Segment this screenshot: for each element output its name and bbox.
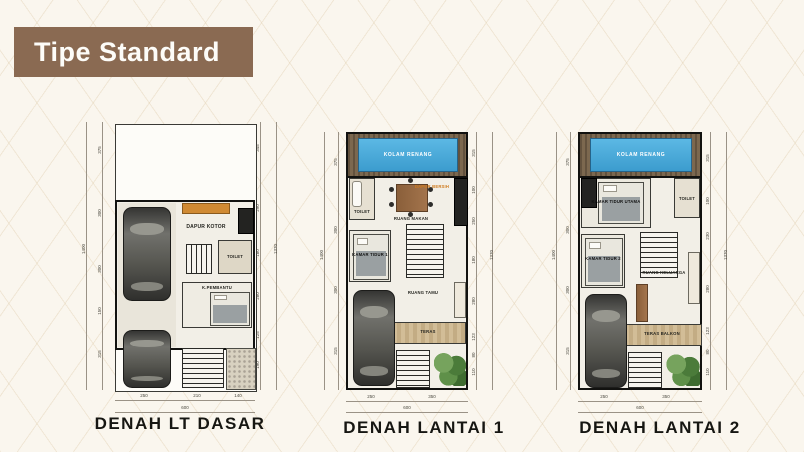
room-label-kamar-tidur-1: KAMAR TIDUR 1	[349, 252, 391, 258]
dimension-label: 300	[333, 218, 339, 242]
dimension-label: 230	[705, 224, 711, 248]
room-label-kolam-renang: KOLAM RENANG	[617, 152, 666, 158]
dimension-label: 350	[417, 394, 447, 400]
dimension-label: 150	[97, 299, 103, 323]
dimension-label: 190	[255, 353, 261, 377]
dimension-label: 600	[625, 405, 655, 411]
chair	[389, 202, 394, 207]
dimension-label: 250	[589, 394, 619, 400]
dimension-line	[346, 401, 468, 402]
appliance-cabinet	[238, 208, 254, 234]
dimension-label: 375	[333, 150, 339, 174]
gravel-patch	[226, 348, 256, 390]
dimension-label: 100	[471, 178, 477, 202]
dimension-label: 110	[471, 360, 477, 384]
room-label-toilet: TOILET	[218, 254, 252, 260]
room-label-kamar-tidur-utama: KAMAR TIDUR UTAMA	[584, 199, 648, 205]
dimension-label: 280	[705, 277, 711, 301]
dimension-label: 1400	[319, 243, 325, 267]
dimension-label: 300	[97, 201, 103, 225]
plan-title: DENAH LANTAI 2	[540, 418, 780, 438]
room-label-kolam-renang: KOLAM RENANG	[384, 152, 433, 158]
plan-title: DENAH LT DASAR	[70, 414, 290, 434]
room-label-dapur-kotor: DAPUR KOTOR	[175, 224, 237, 230]
dimension-line	[346, 412, 468, 413]
floor-plan-level1: KOLAM RENANG TOILET RUANG MAKAN DAPUR BE…	[308, 112, 540, 442]
sofa	[454, 282, 466, 318]
outdoor-stairs	[182, 348, 224, 388]
room-label-teras: TERAS	[392, 329, 464, 335]
room-label-ruang-keluarga: RUANG KELUARGA	[632, 270, 696, 276]
dimension-label: 100	[705, 189, 711, 213]
dimension-label: 300	[565, 278, 571, 302]
dimension-label: 315	[565, 339, 571, 363]
dimension-label: 315	[97, 342, 103, 366]
dimension-label: 210	[182, 393, 212, 399]
dimension-label: 280	[471, 289, 477, 313]
dimension-label: 345	[255, 136, 261, 160]
dimension-label: 1400	[551, 243, 557, 267]
dimension-line	[578, 412, 702, 413]
dimension-label: 600	[170, 405, 200, 411]
plan-title: DENAH LANTAI 1	[308, 418, 540, 438]
swimming-pool: KOLAM RENANG	[358, 138, 458, 172]
floor-plan-level2: KOLAM RENANG KAMAR TIDUR UTAMA TOILET KA…	[540, 112, 780, 442]
console-table	[636, 284, 648, 322]
room-label-toilet: TOILET	[346, 209, 378, 215]
type-banner: Tipe Standard	[14, 27, 253, 77]
dimension-label: 1370	[723, 243, 729, 267]
dimension-label: 180	[471, 248, 477, 272]
outdoor-stairs	[396, 350, 430, 388]
outdoor-stairs	[628, 352, 662, 388]
stairs	[406, 224, 444, 278]
chair	[408, 178, 413, 183]
dimension-label: 250	[471, 209, 477, 233]
dimension-line	[115, 400, 255, 401]
bed	[210, 292, 250, 326]
dimension-label: 300	[97, 257, 103, 281]
floor-plan-ground: DAPUR KOTOR TOILET K.PEMBANTU 375 300 30…	[70, 112, 290, 442]
kitchen-cabinet	[454, 178, 468, 226]
dimension-label: 300	[565, 218, 571, 242]
room-label-pembantu: K.PEMBANTU	[182, 285, 252, 291]
dimension-label: 280	[255, 284, 261, 308]
bed	[585, 238, 623, 286]
car-top-view	[353, 290, 395, 386]
car-top-view	[123, 330, 171, 388]
room-label-toilet: TOILET	[671, 196, 703, 202]
sofa	[688, 252, 700, 304]
room-label-ruang-tamu: RUANG TAMU	[393, 290, 453, 296]
dimension-line	[578, 401, 702, 402]
chair	[389, 187, 394, 192]
dimension-label: 300	[333, 278, 339, 302]
swimming-pool: KOLAM RENANG	[590, 138, 692, 172]
dimension-label: 600	[392, 405, 422, 411]
shrubs	[434, 352, 466, 386]
room-label-kamar-tidur-2: KAMAR TIDUR 2	[581, 256, 625, 262]
car-top-view	[123, 207, 171, 301]
dimension-label: 125	[255, 323, 261, 347]
kitchen-counter	[182, 203, 230, 214]
chair	[428, 202, 433, 207]
dimension-label: 180	[255, 241, 261, 265]
dimension-label: 140	[223, 393, 253, 399]
room-label-dapur-bersih: DAPUR BERSIH	[410, 184, 454, 190]
dimension-label: 315	[705, 146, 711, 170]
car-top-view	[585, 294, 627, 388]
brochure-canvas: Tipe Standard DAPUR KOTOR TOILET K.PEMBA…	[0, 0, 804, 452]
bathtub	[352, 181, 362, 207]
dimension-label: 1370	[489, 243, 495, 267]
dimension-label: 375	[565, 150, 571, 174]
dimension-label: 250	[356, 394, 386, 400]
room-label-ruang-makan: RUANG MAKAN	[383, 216, 439, 222]
dimension-label: 350	[651, 394, 681, 400]
dimension-line	[115, 412, 255, 413]
dimension-label: 315	[471, 141, 477, 165]
dimension-label: 1400	[81, 237, 87, 261]
room-label-teras-balkon: TERAS BALKON	[624, 331, 700, 337]
dimension-label: 375	[97, 138, 103, 162]
dimension-label: 1370	[273, 237, 279, 261]
dimension-label: 110	[705, 360, 711, 384]
stairs	[186, 244, 212, 274]
dimension-label: 290	[255, 196, 261, 220]
shrubs	[666, 354, 700, 386]
dimension-label: 315	[333, 339, 339, 363]
dimension-label: 250	[129, 393, 159, 399]
